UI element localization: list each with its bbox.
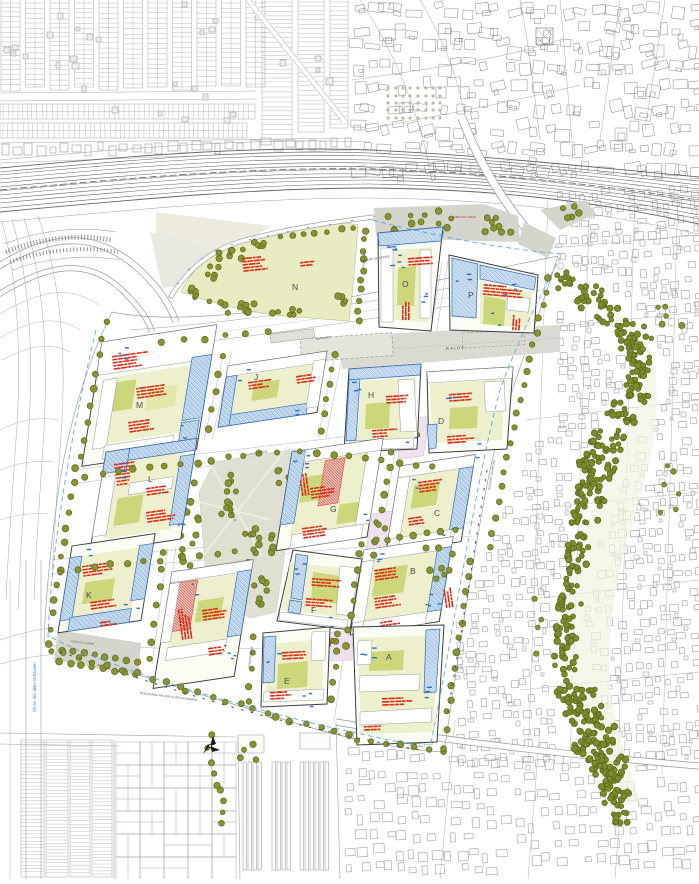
svg-text:N: N — [292, 282, 298, 292]
svg-text:L: L — [148, 474, 153, 484]
svg-text:O: O — [402, 279, 409, 289]
svg-text:B: B — [410, 566, 416, 576]
svg-text:VORPLATZ U-BAHN: VORPLATZ U-BAHN — [452, 215, 476, 219]
svg-text:H: H — [368, 390, 374, 400]
svg-text:M: M — [136, 400, 143, 410]
svg-text:F: F — [311, 605, 316, 615]
svg-text:K: K — [86, 590, 92, 600]
svg-text:A: A — [386, 652, 392, 662]
svg-text:P: P — [468, 290, 474, 300]
svg-text:U2 An den alten Schanzen: U2 An den alten Schanzen — [32, 662, 37, 712]
svg-text:D: D — [438, 416, 444, 426]
svg-text:G: G — [330, 504, 337, 514]
svg-text:C: C — [434, 508, 440, 518]
svg-text:RAIDE: RAIDE — [446, 345, 466, 351]
svg-text:E: E — [284, 676, 290, 686]
svg-text:J: J — [254, 372, 258, 382]
